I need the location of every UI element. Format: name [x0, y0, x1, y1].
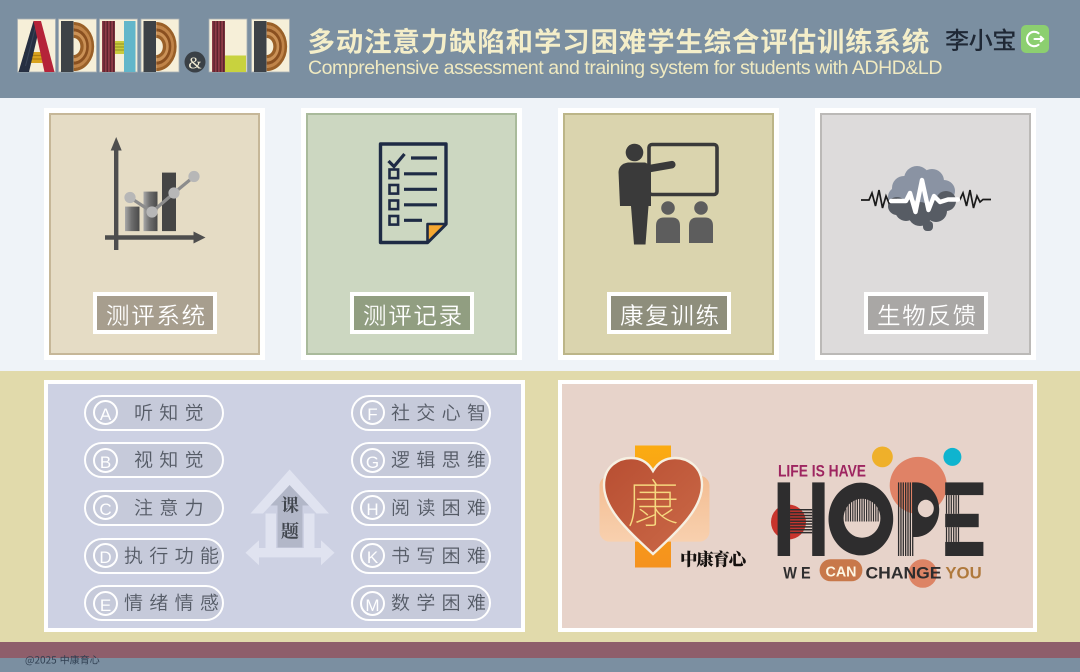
- svg-text:CHANGE: CHANGE: [866, 564, 942, 583]
- svg-text:YOU: YOU: [945, 564, 981, 583]
- svg-text:CAN: CAN: [826, 565, 857, 581]
- svg-text:&: &: [188, 54, 201, 73]
- svg-text:W E: W E: [783, 564, 810, 583]
- svg-text:LIFE IS HAVE: LIFE IS HAVE: [778, 462, 866, 480]
